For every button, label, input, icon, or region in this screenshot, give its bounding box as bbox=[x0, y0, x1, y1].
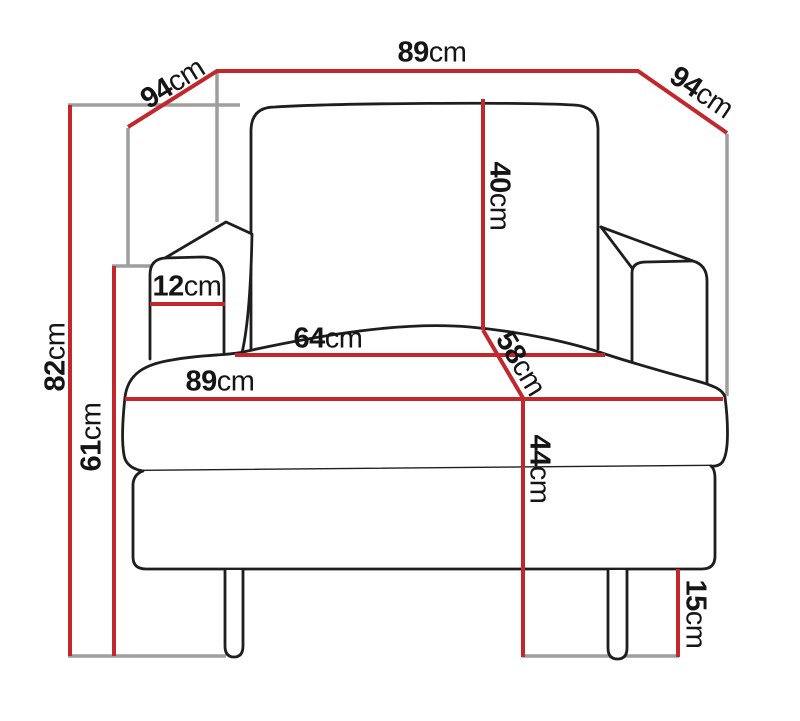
dimension-value: 61 bbox=[76, 440, 108, 471]
dimension-unit: cm bbox=[484, 193, 516, 231]
right-leg-outline bbox=[608, 570, 627, 659]
dimension-unit: cm bbox=[429, 37, 467, 69]
label-top-width: 89cm bbox=[398, 39, 467, 68]
label-seat-inner-width: 64cm bbox=[294, 325, 363, 354]
dimension-unit: cm bbox=[76, 403, 108, 441]
dimension-unit: cm bbox=[680, 611, 712, 649]
dimension-value: 15 bbox=[680, 580, 712, 611]
dimension-value: 89 bbox=[186, 366, 217, 398]
dimension-value: 82 bbox=[40, 360, 72, 391]
dimension-unit: cm bbox=[184, 271, 222, 303]
dimension-value: 44 bbox=[524, 435, 556, 466]
label-total-height: 82cm bbox=[42, 323, 71, 392]
dimension-diagram: 89cm 94cm 94cm 40cm 12cm 64cm 58cm 89cm … bbox=[0, 0, 800, 721]
label-armrest-height: 61cm bbox=[78, 403, 107, 472]
left-leg-outline bbox=[225, 570, 243, 657]
dimension-value: 64 bbox=[294, 323, 325, 355]
label-leg-height: 15cm bbox=[681, 580, 710, 649]
label-backrest-height: 40cm bbox=[485, 162, 514, 231]
dimension-value: 40 bbox=[484, 162, 516, 193]
dimension-unit: cm bbox=[524, 466, 556, 504]
dimension-value: 12 bbox=[153, 271, 184, 303]
backrest-outline bbox=[251, 103, 598, 349]
base-outline bbox=[133, 466, 715, 569]
label-seat-height: 44cm bbox=[525, 435, 554, 504]
label-armrest-width: 12cm bbox=[153, 273, 222, 302]
label-seat-width: 89cm bbox=[186, 368, 255, 397]
dimension-unit: cm bbox=[217, 366, 255, 398]
dimension-value: 89 bbox=[398, 37, 429, 69]
dimension-unit: cm bbox=[40, 323, 72, 361]
dimension-unit: cm bbox=[325, 323, 363, 355]
